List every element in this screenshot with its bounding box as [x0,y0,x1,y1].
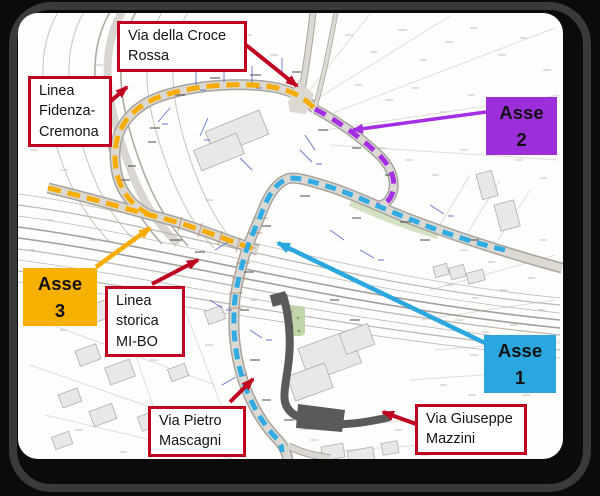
callout-via-giuseppe-mazzini: Via Giuseppe Mazzini [415,404,527,455]
callout-line: Via della Croce [128,26,236,46]
callout-line: Cremona [39,122,101,142]
label-asse-1: Asse 1 [484,335,556,393]
callout-line: Mascagni [159,431,235,451]
callout-linea-storica-mi-bo: Linea storica MI-BO [105,286,185,357]
callout-line: Linea [39,81,101,101]
callout-line: Fidenza- [39,101,101,121]
callout-line: Via Pietro [159,411,235,431]
callout-line: Linea [116,291,174,311]
annotated-map-figure: Via della Croce Rossa Linea Fidenza- Cre… [0,0,600,496]
callout-line: Rossa [128,46,236,66]
label-asse-3: Asse 3 [23,268,97,326]
callout-linea-fidenza-cremona: Linea Fidenza- Cremona [28,76,112,147]
callout-line: Via Giuseppe [426,409,516,429]
callout-line: Mazzini [426,429,516,449]
callout-via-pietro-mascagni: Via Pietro Mascagni [148,406,246,457]
callout-line: MI-BO [116,332,174,352]
callout-via-della-croce-rossa: Via della Croce Rossa [117,21,247,72]
label-asse-2: Asse 2 [486,97,557,155]
callout-line: storica [116,311,174,331]
